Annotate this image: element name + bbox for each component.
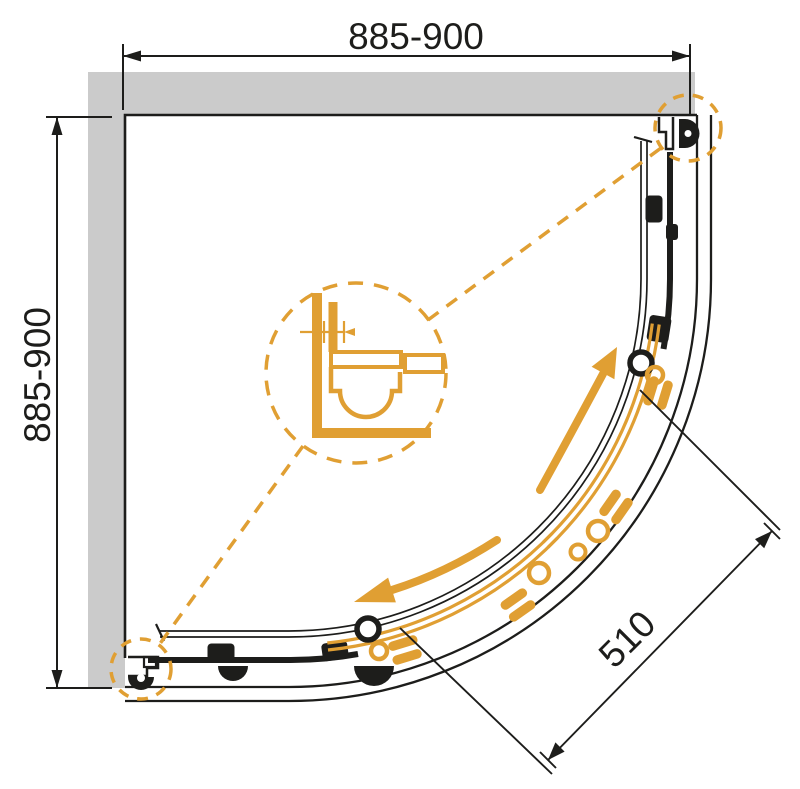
glass-clamp bbox=[208, 644, 235, 661]
detail-leader-line-bottom bbox=[159, 446, 303, 645]
dim-arrow-left bbox=[123, 51, 141, 62]
wall-top bbox=[88, 72, 695, 115]
extension-line bbox=[400, 628, 552, 774]
glass-clamp bbox=[646, 196, 663, 223]
dim-arrow-up bbox=[52, 117, 63, 135]
wall-profile-top-right bbox=[659, 117, 700, 149]
roller-wheel bbox=[571, 545, 586, 560]
detail-leader-line-top bbox=[428, 148, 661, 320]
detail-rail-section-right bbox=[405, 355, 443, 372]
dim-diagonal-label: 510 bbox=[591, 603, 664, 676]
arrow-left-tail bbox=[392, 540, 497, 590]
detail-bubble bbox=[159, 148, 661, 645]
roller-wheel bbox=[371, 643, 387, 659]
shower-enclosure-technical-drawing: 885-900 885-900 510 bbox=[0, 0, 800, 789]
door-direction-arrows bbox=[354, 347, 617, 602]
wall-inner-edge bbox=[125, 115, 697, 658]
rail-guide-block bbox=[666, 224, 678, 240]
dim-left-label: 885-900 bbox=[17, 307, 58, 443]
detail-roller-housing bbox=[331, 367, 400, 417]
detail-rail-section bbox=[331, 352, 401, 367]
door-knob-bottom bbox=[357, 618, 379, 640]
glass-line-inner bbox=[160, 141, 647, 637]
glass-end-cap-top bbox=[634, 137, 652, 142]
extension-line bbox=[640, 390, 780, 530]
detail-dim-arrow bbox=[344, 328, 355, 336]
arrow-up-tail bbox=[540, 372, 604, 490]
guide-roller bbox=[354, 666, 394, 686]
roller-wheel bbox=[588, 521, 608, 541]
fixed-glass-and-track bbox=[156, 137, 652, 641]
dim-arrow-right bbox=[672, 51, 690, 62]
dim-arrow-down bbox=[52, 670, 63, 688]
dimension-line bbox=[548, 531, 772, 760]
guide-roller bbox=[218, 666, 248, 681]
plan-view-diagram: 885-900 885-900 510 bbox=[0, 0, 800, 789]
roller-wheel bbox=[529, 563, 549, 583]
wall-left bbox=[88, 72, 125, 688]
tray-inner-edge bbox=[125, 115, 697, 687]
dimension-diagonal: 510 bbox=[400, 390, 780, 774]
arrow-left-head bbox=[354, 578, 396, 603]
dim-top-label: 885-900 bbox=[348, 16, 484, 57]
bottom-guides bbox=[218, 666, 394, 686]
roller-cluster bbox=[499, 587, 537, 624]
